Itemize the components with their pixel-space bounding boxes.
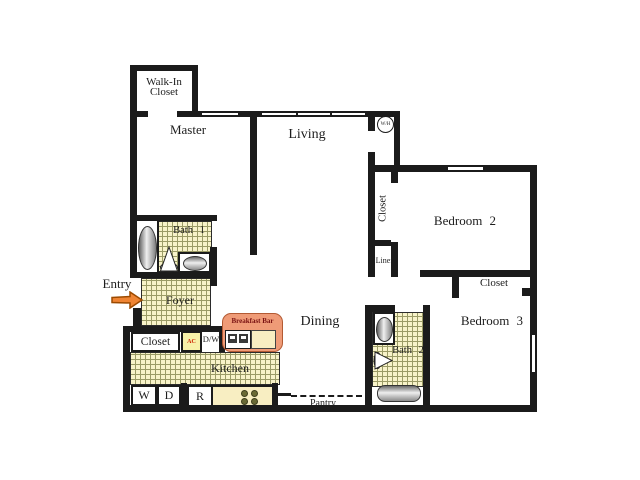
sink-basin (183, 256, 207, 271)
closet-label-bedroom3: Closet (464, 277, 524, 289)
water-heater-label: W/H (381, 122, 391, 127)
window (262, 111, 365, 117)
wall-segment (177, 111, 202, 117)
dryer-box: D (157, 385, 181, 406)
kitchen-door-leaf (278, 393, 291, 396)
wall-segment (210, 278, 217, 286)
closet-label-pantry: Pantry (298, 398, 348, 409)
toilet-icon (159, 245, 179, 273)
room-label-kitchen: Kitchen (195, 361, 265, 376)
washer-label: W (138, 388, 149, 403)
dryer-label: D (165, 388, 174, 403)
entry-arrow-icon (111, 291, 144, 309)
wall-segment (391, 172, 398, 183)
room-label-master: Master (153, 122, 223, 138)
closet-label-bedroom2: Closet (378, 184, 389, 234)
wall-segment (368, 111, 375, 131)
room-label-bath2: Bath 2 (377, 345, 439, 356)
sink-basin (376, 317, 393, 342)
bathtub-basin (138, 226, 157, 270)
bathtub (377, 385, 421, 402)
dishwasher-label: D/W (199, 334, 223, 344)
floor-plan: W/H Closet AC D/W Breakfast Bar W D R Wa… (0, 0, 640, 480)
window (448, 165, 483, 172)
stove-burner (241, 390, 248, 397)
room-label-bath1: Bath 1 (158, 225, 220, 236)
wall-segment (530, 372, 537, 412)
wall-segment (483, 165, 530, 172)
pantry-dashed-line (291, 395, 362, 397)
wall-segment (375, 240, 391, 246)
stove-burner (251, 390, 258, 397)
stove-burner (251, 398, 258, 405)
ac-unit-label: AC (187, 339, 196, 345)
wall-segment (375, 165, 448, 172)
window (530, 335, 537, 372)
room-label-foyer: Foyer (150, 293, 210, 308)
wall-segment (130, 65, 198, 71)
kitchen-counter (251, 330, 276, 349)
wall-segment (272, 383, 278, 412)
wall-segment (133, 308, 141, 326)
room-label-living: Living (272, 127, 342, 143)
room-label-bedroom3: Bedroom 3 (442, 313, 542, 329)
water-heater: W/H (377, 116, 394, 133)
sink-basin (228, 334, 237, 343)
entry-closet-box: Closet (131, 332, 180, 352)
wall-segment (365, 305, 395, 312)
room-label-bedroom2: Bedroom 2 (415, 213, 515, 229)
wall-segment (365, 305, 372, 405)
window (202, 111, 238, 117)
stove-burner (241, 398, 248, 405)
wall-segment (522, 288, 530, 296)
wall-segment (123, 326, 130, 412)
refrigerator-label: R (196, 389, 204, 404)
window-mullion (330, 113, 332, 115)
washer-box: W (131, 385, 157, 406)
closet-label-walkin: Walk-In Closet (134, 77, 194, 97)
wall-segment (530, 165, 537, 335)
wall-segment (420, 270, 530, 277)
closet-label-entry: Closet (141, 336, 170, 348)
entry-label: Entry (92, 276, 142, 292)
wall-segment (452, 277, 459, 298)
closet-label-linen: Linen (369, 256, 401, 265)
wall-segment (130, 117, 137, 278)
closet-label-walkin-line2: Closet (134, 87, 194, 97)
sink-basin (239, 334, 248, 343)
refrigerator-box: R (187, 385, 213, 407)
wall-segment (394, 111, 400, 172)
room-label-dining: Dining (285, 314, 355, 330)
window-mullion (296, 113, 298, 115)
wall-segment (250, 117, 257, 255)
breakfast-bar-label: Breakfast Bar (223, 317, 282, 325)
